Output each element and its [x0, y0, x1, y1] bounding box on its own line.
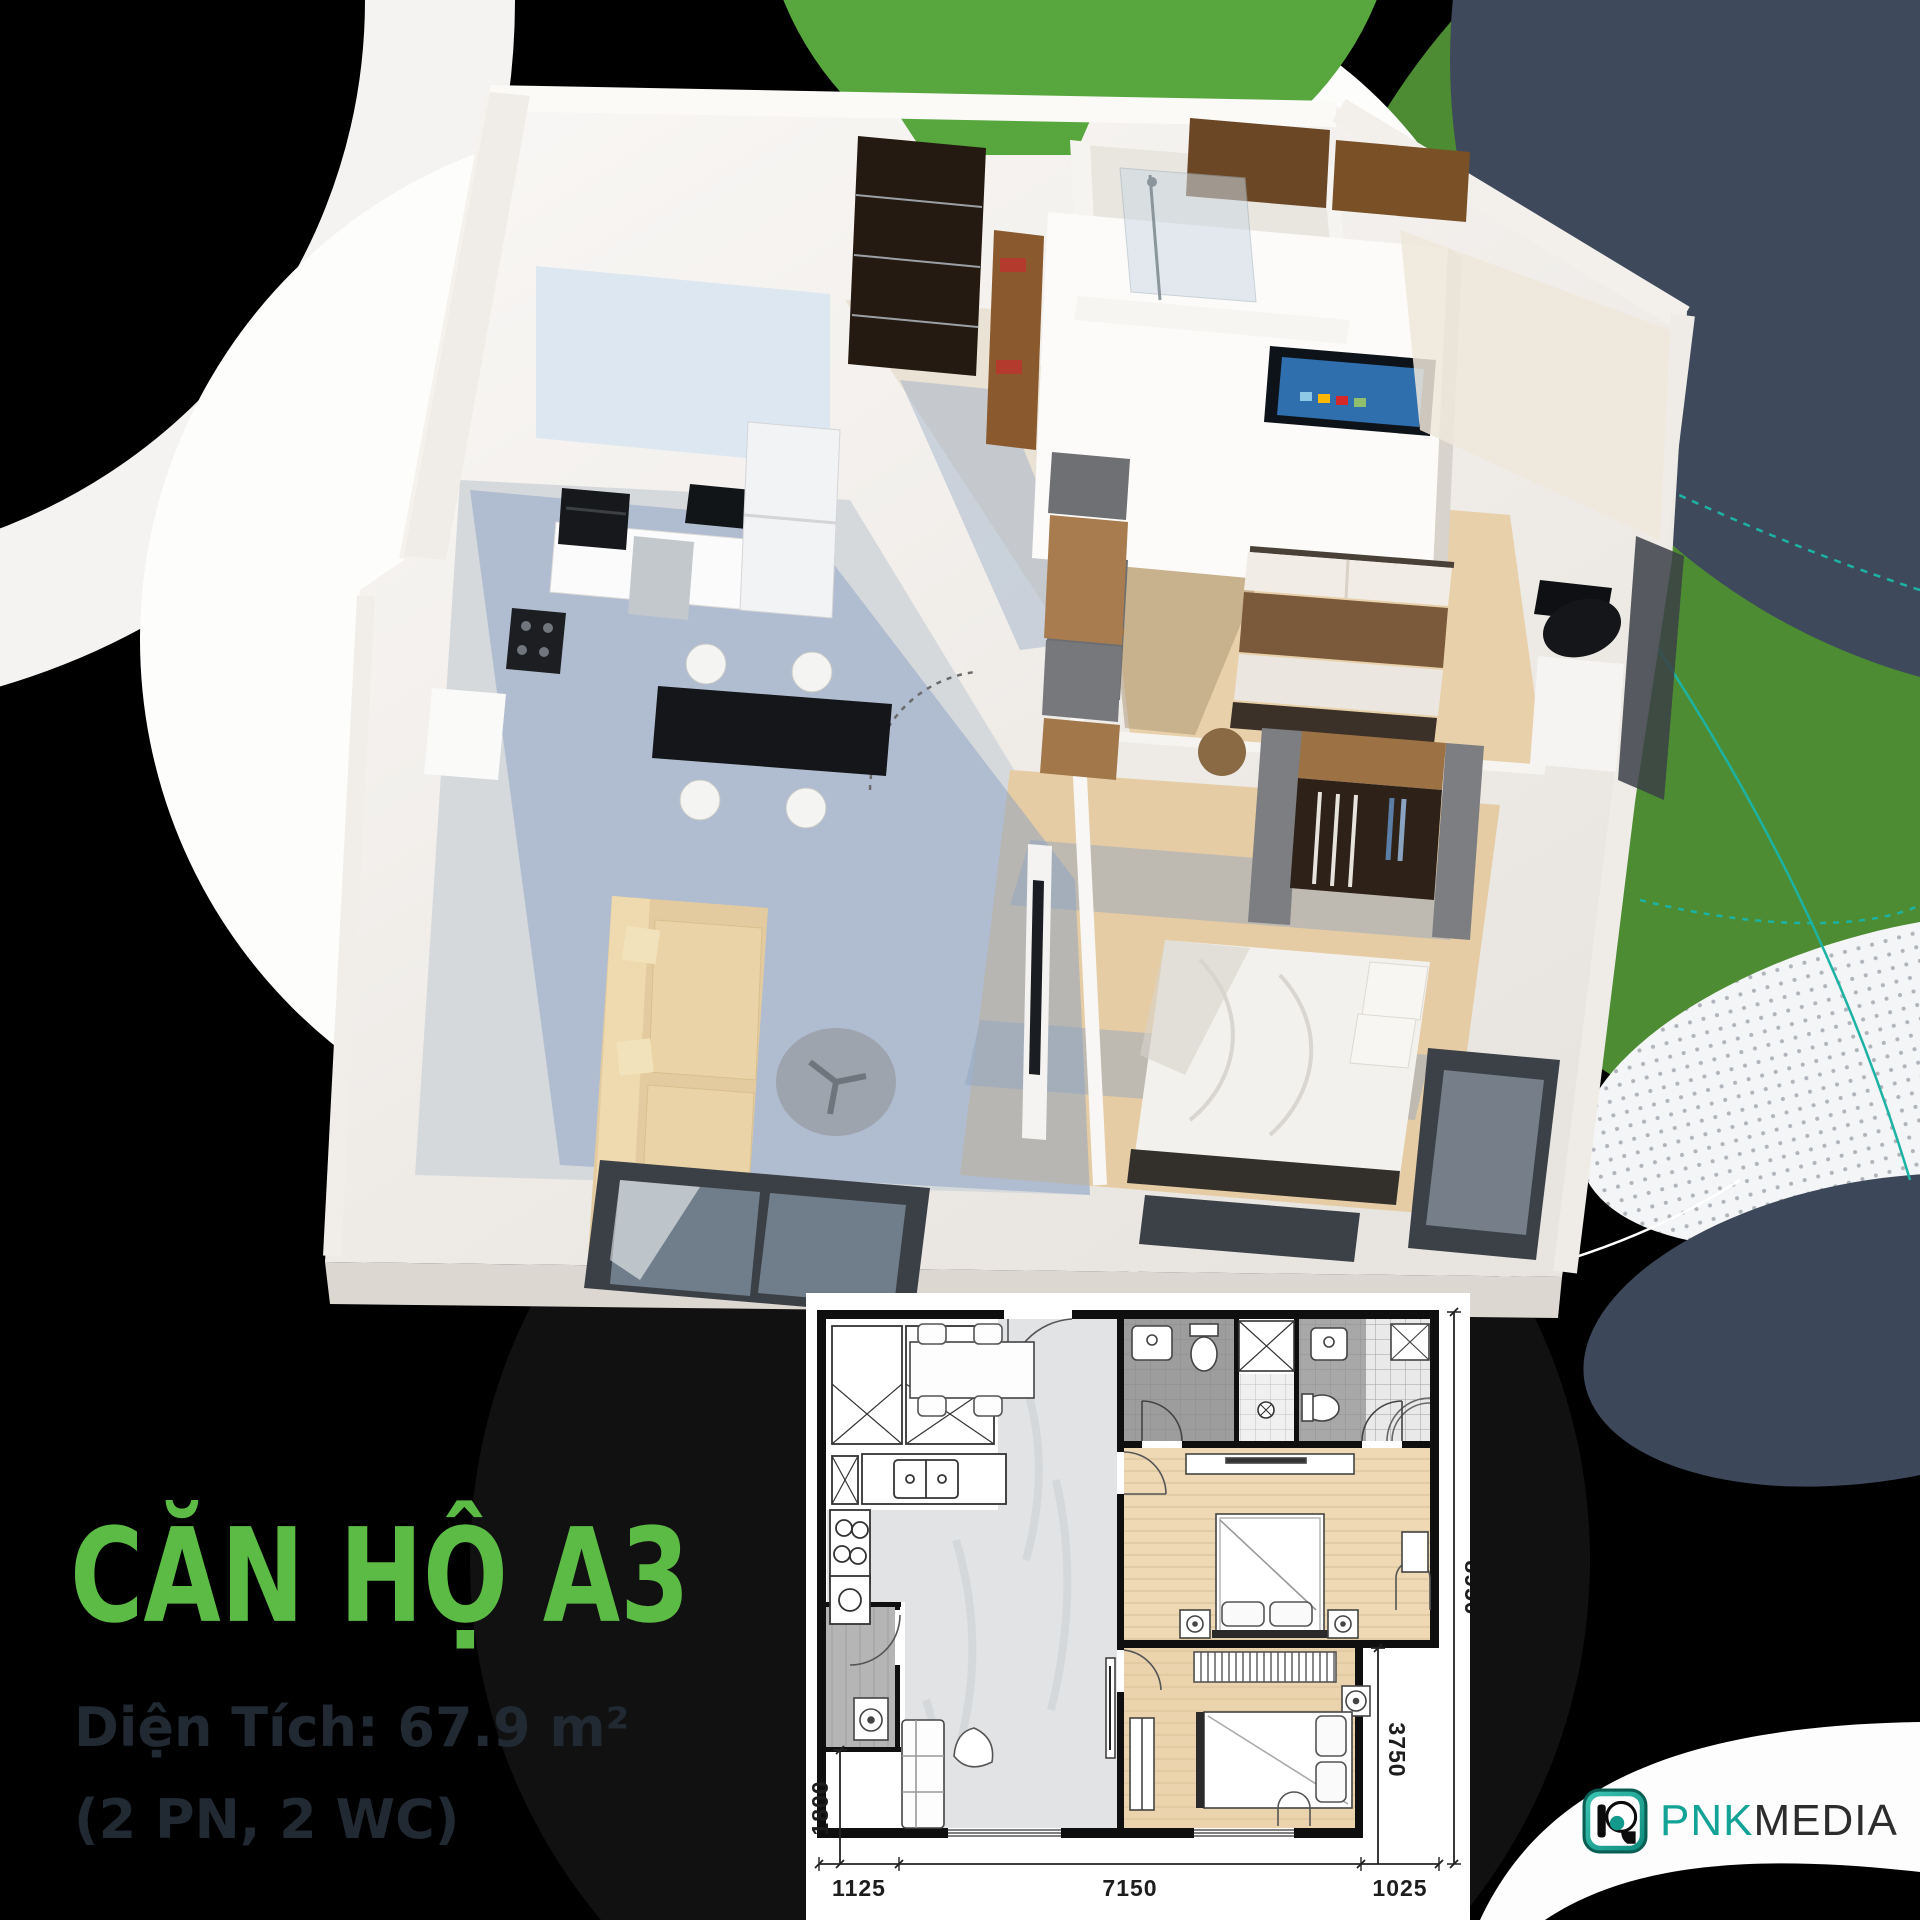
- page-title: CĂN HỘ A3: [70, 1500, 690, 1652]
- logo-text: PNKMEDIA: [1660, 1796, 1898, 1846]
- subtitle-area: Diện Tích: 67.9 m²: [74, 1682, 629, 1774]
- dim-bottom-right: 1025: [1372, 1875, 1427, 1901]
- poster-canvas: 1125 7150 1025 8950 3750 1800 CĂN HỘ A3 …: [0, 0, 1920, 1920]
- floor-plan-2d: 1125 7150 1025 8950 3750 1800: [806, 1280, 1470, 1920]
- dim-total-height: 8950: [1460, 1560, 1470, 1615]
- tv-screen: [1277, 357, 1424, 427]
- brand-logo: PNKMEDIA: [1582, 1788, 1898, 1854]
- subtitle-rooms: (2 PN, 2 WC): [74, 1774, 629, 1866]
- logo-text-primary: PNK: [1660, 1796, 1753, 1845]
- subtitle: Diện Tích: 67.9 m² (2 PN, 2 WC): [74, 1682, 629, 1866]
- pnk-monogram-icon: [1582, 1788, 1648, 1854]
- dim-balcony-height: 1800: [807, 1780, 833, 1835]
- dim-bedroom2-height: 3750: [1384, 1722, 1410, 1777]
- logo-text-secondary: MEDIA: [1753, 1796, 1897, 1845]
- dim-bottom-left: 1125: [832, 1875, 886, 1901]
- dim-bottom-center: 7150: [1102, 1875, 1157, 1901]
